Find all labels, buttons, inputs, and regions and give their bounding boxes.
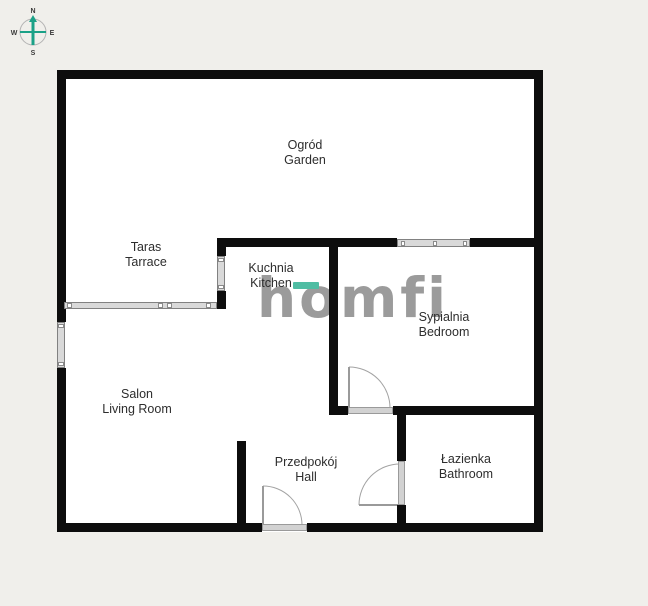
wall-terrace-kitchen-lower <box>217 291 226 309</box>
room-label-kitchen: Kuchnia Kitchen <box>248 261 293 291</box>
room-name-pl: Łazienka <box>439 452 493 467</box>
living-room-west-window <box>57 322 65 368</box>
wall-outer-left-lower <box>57 368 66 532</box>
window-mullion <box>167 303 172 308</box>
wall-garden-south-right <box>470 238 534 247</box>
compass-icon: N E S W <box>4 4 62 62</box>
window-mullion <box>67 303 72 308</box>
kitchen-west-window <box>217 256 225 291</box>
bedroom-door-arc <box>349 367 390 408</box>
wall-outer-right <box>534 70 543 532</box>
room-label-garden: Ogród Garden <box>284 138 326 168</box>
window-mullion <box>433 241 437 246</box>
room-name-en: Garden <box>284 153 326 168</box>
window-mullion <box>206 303 211 308</box>
wall-hall-west <box>237 441 246 523</box>
bedroom-north-window <box>397 239 470 247</box>
compass-label-w: W <box>11 30 18 37</box>
room-label-bathroom: Łazienka Bathroom <box>439 452 493 482</box>
wall-bedroom-south-right <box>393 406 534 415</box>
room-label-bedroom: Sypialnia Bedroom <box>419 310 470 340</box>
wall-garden-south-left <box>217 238 397 247</box>
room-name-en: Bathroom <box>439 467 493 482</box>
terrace-window <box>64 302 217 309</box>
bathroom-door-arc <box>359 464 400 505</box>
room-name-pl: Przedpokój <box>275 455 338 470</box>
wall-outer-bottom-right <box>307 523 543 532</box>
window-mullion <box>58 362 64 366</box>
room-name-pl: Kuchnia <box>248 261 293 276</box>
bathroom-door-threshold <box>398 461 405 505</box>
room-label-terrace: Taras Tarrace <box>125 240 167 270</box>
floor-plan: homfi <box>0 0 648 606</box>
window-mullion <box>218 258 224 262</box>
wall-bathroom-west-lower <box>397 505 406 523</box>
room-name-en: Kitchen <box>248 276 293 291</box>
room-name-en: Bedroom <box>419 325 470 340</box>
room-name-en: Hall <box>275 470 338 485</box>
wall-bathroom-west-upper <box>397 415 406 461</box>
wall-outer-top <box>57 70 543 79</box>
wall-bedroom-south-left <box>329 406 348 415</box>
wall-outer-bottom-left <box>57 523 262 532</box>
wall-outer-left-upper <box>57 70 66 322</box>
window-mullion <box>218 285 224 289</box>
compass-label-n: N <box>30 8 35 15</box>
room-label-hall: Przedpokój Hall <box>275 455 338 485</box>
wall-terrace-kitchen-upper <box>217 238 226 256</box>
room-name-en: Living Room <box>102 402 171 417</box>
compass-label-s: S <box>31 50 36 57</box>
room-name-pl: Taras <box>125 240 167 255</box>
entrance-door-threshold <box>262 524 307 531</box>
window-mullion <box>58 324 64 328</box>
window-mullion <box>463 241 467 246</box>
room-name-pl: Ogród <box>284 138 326 153</box>
bedroom-door-threshold <box>348 407 393 414</box>
wall-kitchen-bedroom <box>329 247 338 415</box>
room-name-pl: Salon <box>102 387 171 402</box>
room-name-en: Tarrace <box>125 255 167 270</box>
compass-label-e: E <box>50 30 55 37</box>
window-mullion <box>401 241 405 246</box>
room-name-pl: Sypialnia <box>419 310 470 325</box>
entrance-door-arc <box>263 486 302 525</box>
window-mullion <box>158 303 163 308</box>
room-label-living-room: Salon Living Room <box>102 387 171 417</box>
compass-north-arrow <box>29 15 37 22</box>
